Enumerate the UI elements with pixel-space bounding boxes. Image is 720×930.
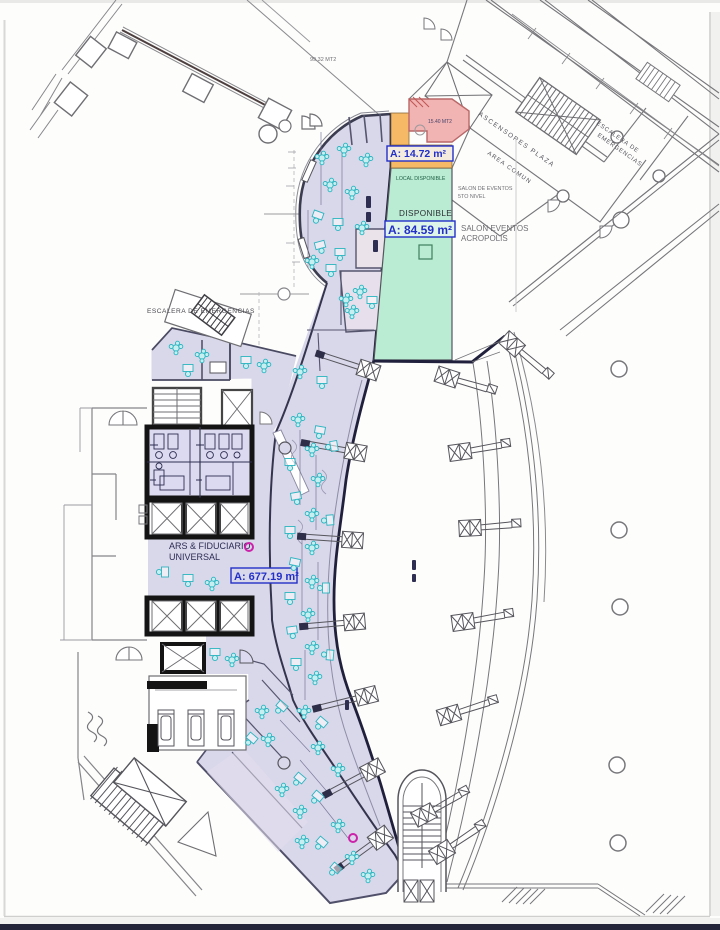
svg-text:SALON EVENTOS: SALON EVENTOS xyxy=(461,224,528,233)
svg-text:5TO NIVEL: 5TO NIVEL xyxy=(458,194,485,200)
svg-text:UNIVERSAL: UNIVERSAL xyxy=(169,552,220,562)
svg-text:A: 14.72 m²: A: 14.72 m² xyxy=(390,148,447,160)
svg-text:A: 84.59 m²: A: 84.59 m² xyxy=(388,223,452,237)
svg-text:15.40 MT2: 15.40 MT2 xyxy=(428,119,452,125)
svg-text:DISPONIBLE: DISPONIBLE xyxy=(399,209,452,218)
svg-text:LOCAL DISPONIBLE: LOCAL DISPONIBLE xyxy=(396,176,446,182)
svg-text:99.32 MT2: 99.32 MT2 xyxy=(310,57,336,63)
svg-text:SALON DE EVENTOS: SALON DE EVENTOS xyxy=(458,186,513,192)
svg-text:ESCALERA DE EMERGENCIAS: ESCALERA DE EMERGENCIAS xyxy=(147,308,255,315)
svg-text:A: 677.19 m²: A: 677.19 m² xyxy=(234,571,299,583)
svg-text:ARS & FIDUCIARIO: ARS & FIDUCIARIO xyxy=(169,541,251,551)
svg-text:ACROPOLIS: ACROPOLIS xyxy=(461,234,508,243)
